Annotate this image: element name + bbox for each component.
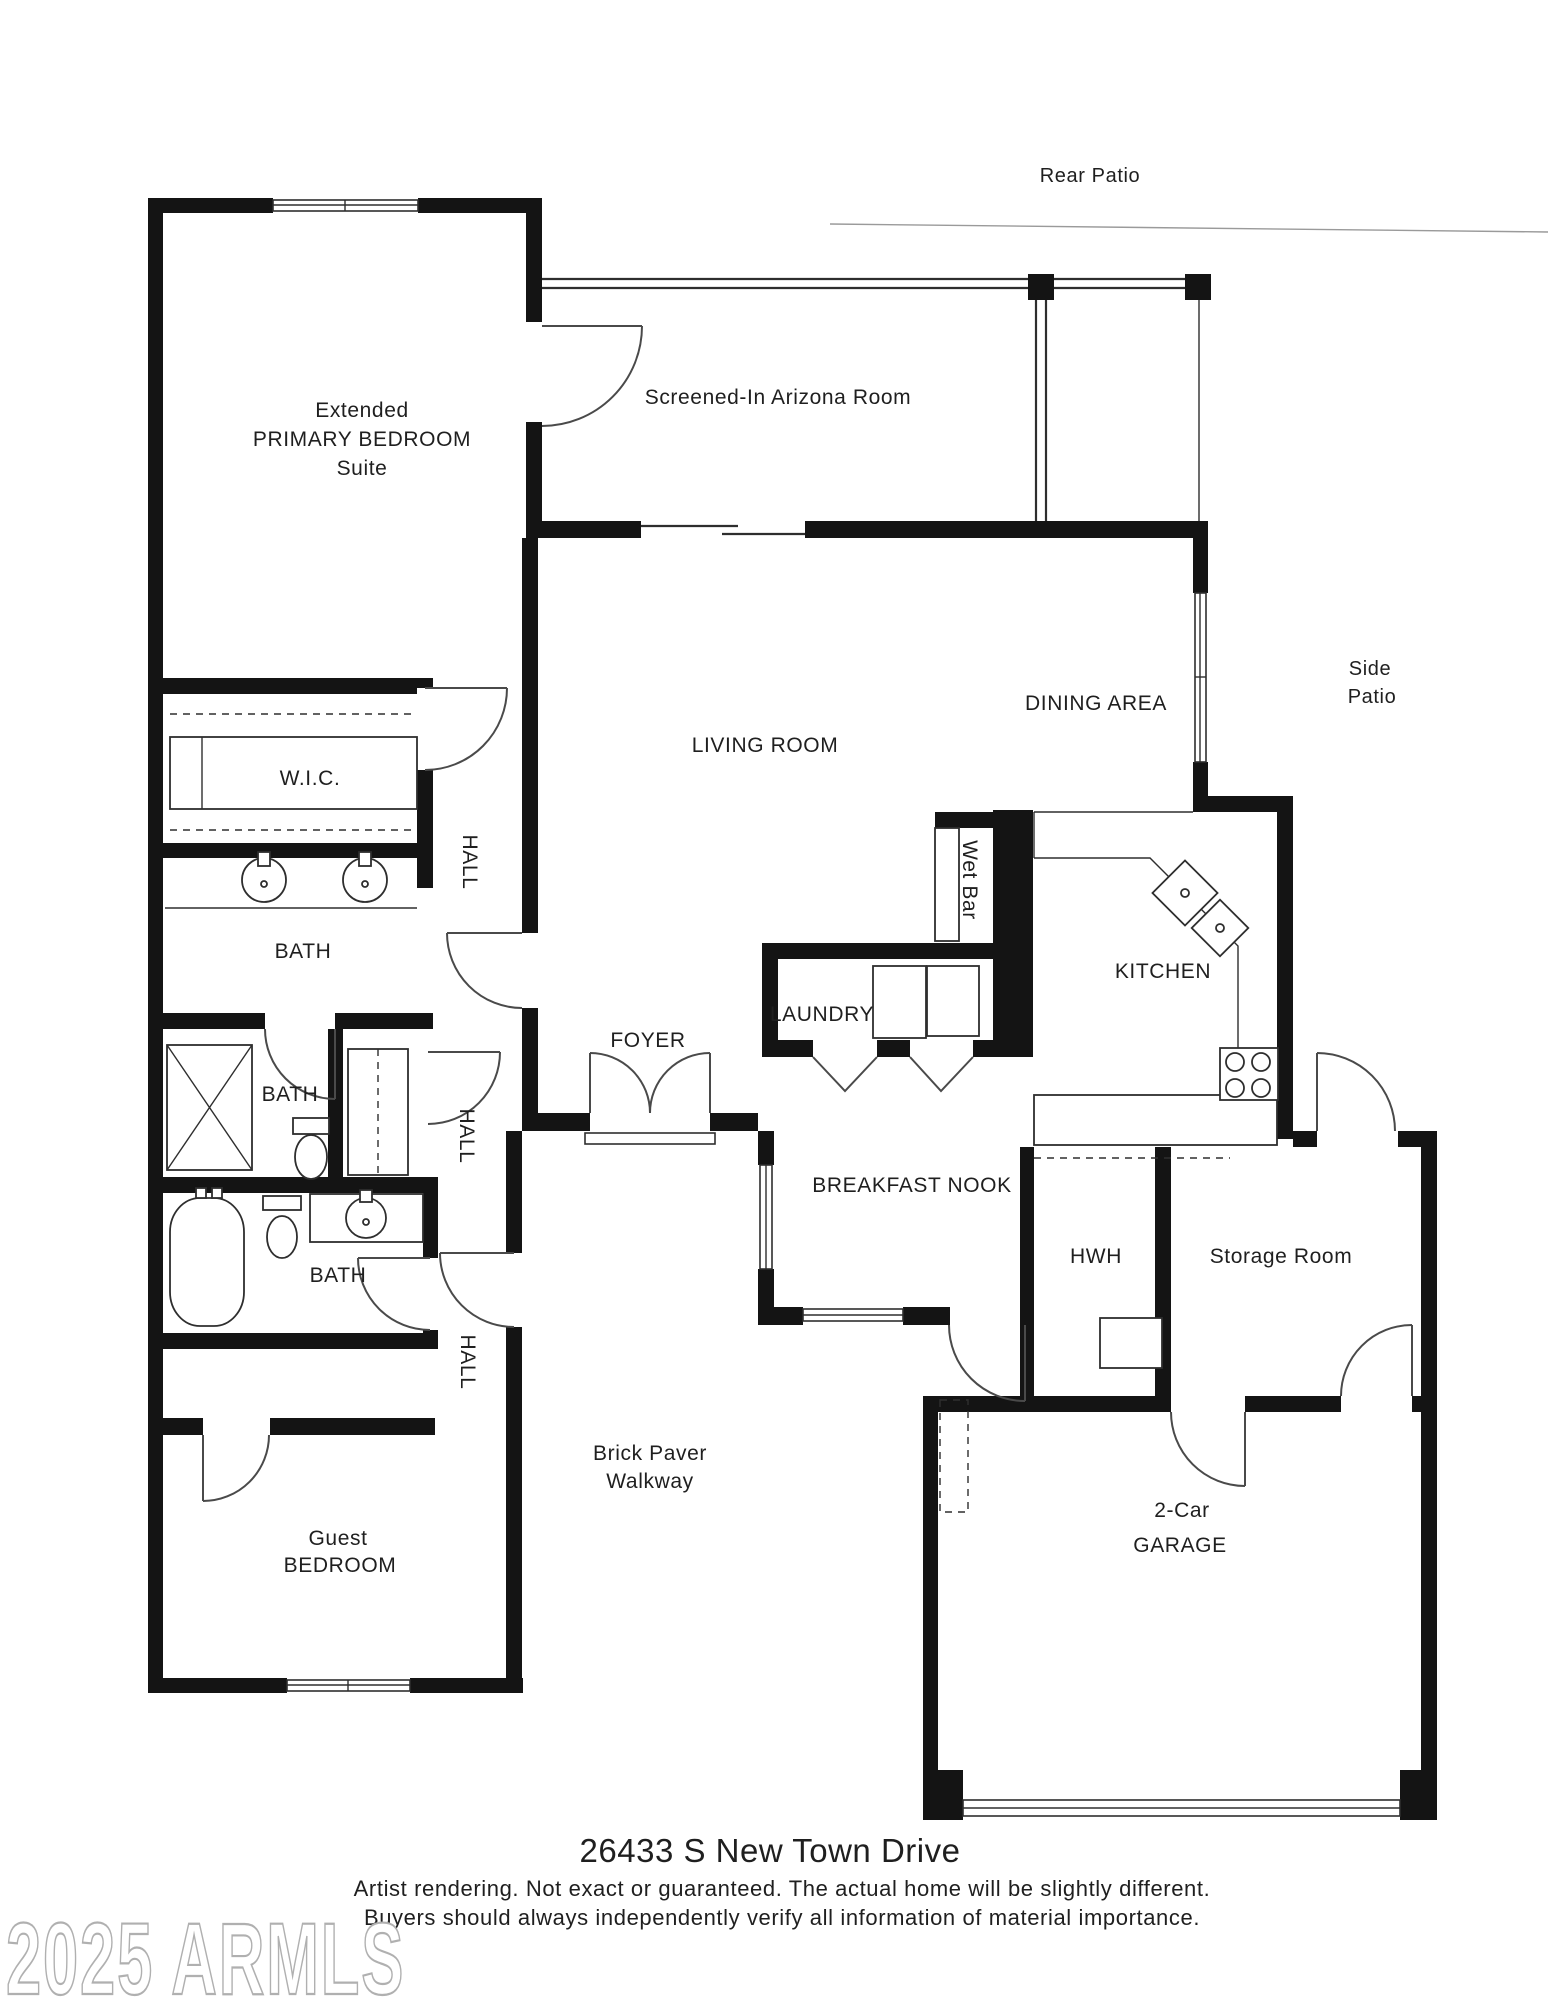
wall-segment: [163, 843, 417, 858]
room-label-hall-middle: HALL: [455, 1109, 478, 1164]
wall-segment: [973, 1040, 993, 1057]
wall-segment: [148, 1678, 287, 1693]
wall-segment: [758, 1131, 774, 1165]
wall-segment: [1293, 1131, 1317, 1147]
wall-segment: [410, 1678, 523, 1693]
wall-segment: [522, 1008, 538, 1113]
wall-segment: [163, 678, 417, 694]
room-label-arizona: Screened-In Arizona Room: [645, 386, 912, 409]
wet-bar-counter: [935, 828, 959, 941]
sink: [242, 852, 286, 902]
door: [1341, 1325, 1412, 1396]
toilet: [293, 1118, 329, 1179]
room-label-walkway-2: Walkway: [606, 1470, 693, 1493]
bifold-door-marks: [813, 1057, 973, 1091]
door: [1171, 1412, 1245, 1486]
disclaimer-line-1: Artist rendering. Not exact or guarantee…: [354, 1876, 1211, 1901]
wall-segment: [418, 198, 542, 213]
floorplan-page: Rear Patio Extended PRIMARY BEDROOM Suit…: [0, 0, 1559, 1999]
wall-segment: [506, 1131, 522, 1253]
wall-segment: [935, 812, 993, 828]
room-label-wet-bar: Wet Bar: [958, 840, 981, 920]
room-label-rear-patio: Rear Patio: [1040, 165, 1141, 187]
wall-segment: [877, 1040, 910, 1057]
window: [803, 1309, 903, 1321]
wall-segment: [417, 678, 433, 688]
wall-segment: [522, 1113, 590, 1131]
sink: [343, 852, 387, 902]
room-label-wic: W.I.C.: [280, 767, 341, 790]
vanity-counter: [310, 1190, 423, 1242]
room-label-side-patio-2: Patio: [1348, 686, 1397, 708]
armls-watermark: 2025 ARMLS: [6, 1901, 405, 1999]
wall-segment: [163, 1418, 203, 1435]
room-label-hwh: HWH: [1070, 1245, 1122, 1268]
wall-segment: [1421, 1131, 1437, 1820]
room-label-breakfast-nook: BREAKFAST NOOK: [812, 1174, 1011, 1197]
room-label-dining: DINING AREA: [1025, 692, 1167, 715]
bathtub: [170, 1188, 244, 1326]
wall-segment: [526, 521, 641, 538]
shower: [167, 1045, 252, 1170]
room-label-kitchen: KITCHEN: [1115, 960, 1211, 983]
wall-segment: [710, 1113, 758, 1131]
patio-post: [1028, 274, 1054, 300]
wall-segment: [148, 198, 163, 1693]
water-heater: [1100, 1318, 1162, 1368]
room-label-guest-1: Guest: [308, 1527, 367, 1550]
wall-segment: [1398, 1131, 1421, 1147]
patio-post: [1185, 274, 1211, 300]
wall-segment: [270, 1418, 435, 1435]
wall-segment: [1277, 796, 1293, 1139]
wall-segment: [522, 538, 538, 933]
wall-segment: [1400, 1770, 1437, 1820]
room-label-bath-middle: BATH: [262, 1083, 319, 1106]
wall-segment: [903, 1307, 950, 1325]
window: [760, 1165, 772, 1269]
room-label-garage-1: 2-Car: [1154, 1499, 1210, 1522]
wall-segment: [923, 1770, 963, 1820]
toilet: [263, 1196, 301, 1258]
room-label-hall-upper: HALL: [458, 835, 481, 890]
garage-door: [963, 1800, 1400, 1816]
room-label-garage-2: GARAGE: [1133, 1534, 1226, 1557]
room-label-bath-primary: BATH: [275, 940, 332, 963]
wall-segment: [1155, 1147, 1171, 1412]
wall-segment: [1412, 1396, 1437, 1412]
room-label-side-patio-1: Side: [1349, 658, 1391, 680]
wall-segment: [1245, 1396, 1341, 1412]
room-label-storage: Storage Room: [1210, 1245, 1353, 1268]
screen-walls: [542, 224, 1548, 521]
wall-segment: [993, 810, 1033, 1057]
door: [949, 1325, 1025, 1401]
wall-segment: [758, 1307, 803, 1325]
wall-segment: [526, 422, 542, 538]
sliding-door: [641, 526, 805, 534]
stove: [1220, 1048, 1278, 1100]
room-label-primary-2: PRIMARY BEDROOM: [253, 428, 471, 451]
wall-segment: [1193, 521, 1208, 593]
washer: [873, 966, 926, 1038]
wall-segment: [163, 1013, 265, 1029]
garage-dashed-area: [940, 1400, 968, 1512]
room-label-walkway-1: Brick Paver: [593, 1442, 707, 1465]
room-label-laundry: LAUNDRY: [770, 1003, 874, 1026]
entry-doors: [590, 1053, 710, 1113]
address-title: 26433 S New Town Drive: [580, 1832, 961, 1869]
wall-segment: [1020, 1147, 1034, 1412]
wall-segment: [938, 1396, 1166, 1412]
kitchen-counter: [1034, 812, 1277, 1158]
wall-segment: [335, 1013, 433, 1029]
dryer: [927, 966, 979, 1036]
wall-segment: [148, 198, 273, 213]
footer: 26433 S New Town Drive Artist rendering.…: [6, 1832, 1210, 1999]
room-label-guest-2: BEDROOM: [284, 1554, 397, 1577]
door: [203, 1435, 269, 1501]
entry-stoop: [585, 1133, 715, 1144]
floorplan-svg: Rear Patio Extended PRIMARY BEDROOM Suit…: [0, 0, 1559, 1999]
wall-segment: [163, 1333, 438, 1349]
room-label-foyer: FOYER: [610, 1029, 685, 1052]
disclaimer-line-2: Buyers should always independently verif…: [364, 1905, 1200, 1930]
window: [273, 200, 418, 211]
wall-segment: [762, 943, 778, 1057]
vanity-counter: [165, 852, 417, 908]
wall-segment: [417, 770, 433, 888]
wall-segment: [762, 1040, 813, 1057]
room-label-primary-1: Extended: [315, 399, 409, 422]
wall-segment: [805, 521, 1208, 538]
door: [1317, 1053, 1395, 1131]
room-label-hall-lower: HALL: [456, 1335, 479, 1390]
door: [447, 933, 522, 1008]
door: [440, 1253, 514, 1327]
door: [542, 326, 642, 426]
room-label-living: LIVING ROOM: [692, 734, 839, 757]
window: [1195, 593, 1206, 762]
room-label-bath-lower: BATH: [310, 1264, 367, 1287]
wall-segment: [423, 1177, 438, 1258]
room-label-primary-3: Suite: [337, 457, 388, 480]
wall-segment: [526, 198, 542, 322]
door: [425, 688, 507, 770]
wall-segment: [923, 1396, 938, 1820]
wall-segment: [506, 1327, 522, 1693]
window: [287, 1680, 410, 1691]
roof-line: [830, 224, 1548, 232]
closet-shelves: [348, 1049, 408, 1175]
wall-segment: [762, 943, 993, 959]
door: [358, 1258, 430, 1330]
